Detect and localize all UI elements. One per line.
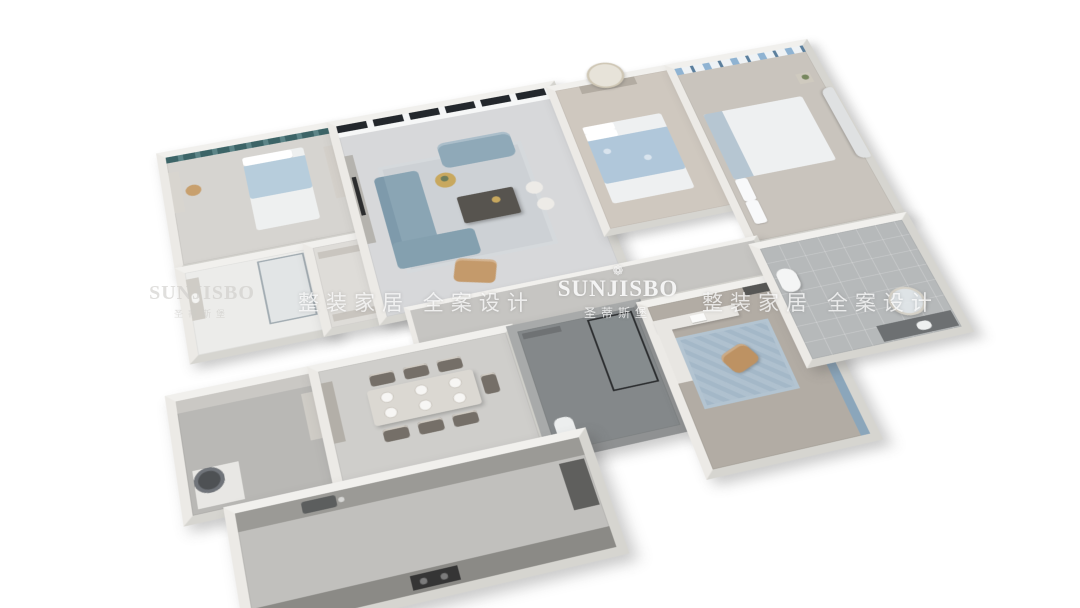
window-wall <box>336 87 551 133</box>
floorplan-render-page: SUNJISBO 圣蒂斯堡 整装家居 全案设计 ❁ SUNJISBO 圣蒂斯堡 … <box>0 0 1080 608</box>
sheer-curtain <box>338 94 553 138</box>
desk <box>168 171 185 213</box>
plate <box>383 406 399 420</box>
fridge <box>559 458 600 510</box>
room-master-bedroom <box>664 39 908 249</box>
dining-chair <box>417 417 445 435</box>
counter <box>176 373 315 414</box>
plate <box>413 383 429 396</box>
dining-chair <box>382 425 410 443</box>
counter <box>251 526 616 608</box>
plate <box>451 391 467 404</box>
dining-chair <box>368 370 396 387</box>
washing-machine <box>192 465 226 496</box>
pillow <box>734 177 757 201</box>
dining-chair <box>480 372 501 395</box>
burner <box>440 572 449 580</box>
pillow <box>745 199 768 224</box>
dining-chair <box>402 363 430 380</box>
dining-chair <box>436 356 464 373</box>
apartment-plan <box>130 38 1016 608</box>
floorplan-3d-view <box>130 38 1016 608</box>
sideboard <box>321 381 346 444</box>
washer-cabinet <box>192 461 245 509</box>
dining-chair <box>451 410 479 428</box>
shelf <box>522 326 562 340</box>
bed <box>703 96 836 180</box>
bed <box>242 147 320 231</box>
armchair-tan <box>453 258 497 283</box>
plate <box>417 398 433 412</box>
plate <box>379 391 395 404</box>
bed <box>582 113 695 204</box>
curtain-blue-stripe <box>674 45 806 75</box>
desk-chair <box>185 183 203 197</box>
burner <box>419 577 428 585</box>
plate <box>447 376 463 389</box>
